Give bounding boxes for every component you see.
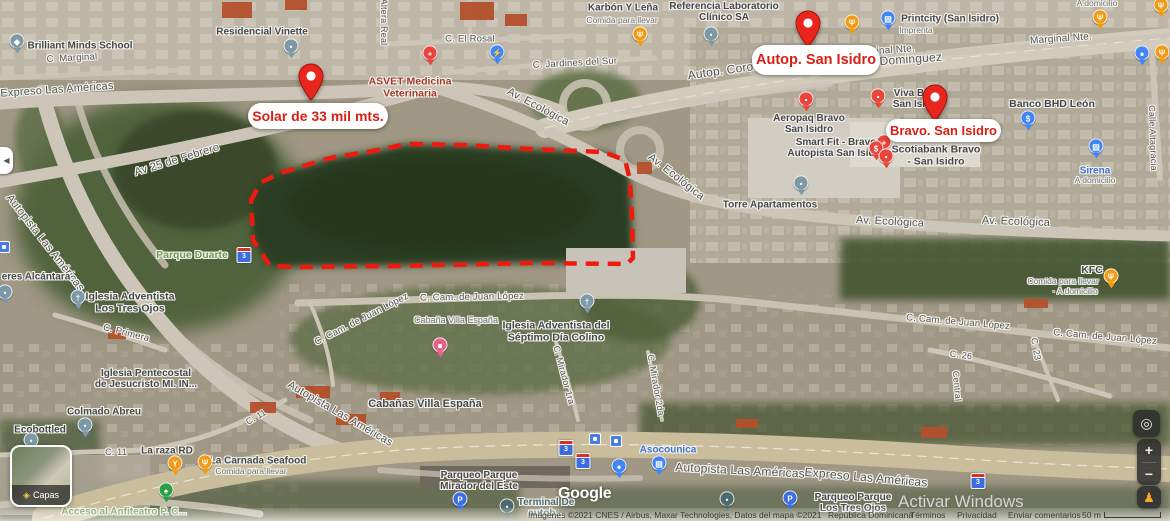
shield-number: 3 <box>577 458 590 467</box>
bravo-san-isidro-label[interactable]: Bravo. San Isidro <box>886 119 1001 142</box>
pin-tip <box>802 105 810 111</box>
street-av-25-de-febrero: Av 25 de Febrero <box>133 141 221 179</box>
parking-pin-glyph: P <box>453 491 468 506</box>
residencial-pin[interactable]: • <box>284 38 299 58</box>
street-expreso-las-americas: Expreso Las Américas <box>0 80 114 100</box>
label-asvet[interactable]: ASVET Medicina Veterinaria <box>369 76 452 100</box>
privacy-link[interactable]: Privacidad <box>957 510 997 520</box>
label-aeropaq[interactable]: Aeropaq Bravo San Isidro <box>773 113 845 135</box>
street-autop-coron: Autop. Coron <box>687 59 761 82</box>
pin-tip <box>882 162 890 168</box>
church-pin-glyph: † <box>71 289 86 304</box>
street-autopista-diag: Autopista Las Américas <box>285 379 395 449</box>
solar-pin[interactable] <box>298 63 324 106</box>
feedback-link[interactable]: Enviar comentarios <box>1008 510 1081 520</box>
restaurant-pin[interactable]: Ψ <box>198 454 213 474</box>
restaurant-pin[interactable]: Ψ <box>845 14 860 34</box>
layers-widget[interactable]: ◈ Capas <box>10 445 72 507</box>
bank-pin[interactable]: $ <box>1021 110 1036 130</box>
street-c11-1: C. 11 <box>105 447 127 457</box>
ev-charging-pin-glyph: ⚡ <box>490 44 505 59</box>
zoom-in-button[interactable]: + <box>1137 439 1161 462</box>
lodging-pin-glyph: ■ <box>433 337 448 352</box>
veterinary-pin[interactable]: + <box>423 45 438 65</box>
transit-pin-glyph: • <box>720 491 735 506</box>
restaurant-pin-glyph: Ψ <box>1104 268 1119 283</box>
cart-pin-glyph: ▤ <box>652 455 667 470</box>
supermarket-cart-pin-glyph: ▤ <box>1089 138 1104 153</box>
label-parque-duarte[interactable]: Parque Duarte <box>156 250 228 262</box>
transit-glyph <box>2 245 6 249</box>
street-c-marginal: C. Marginal <box>46 52 97 65</box>
label-cabanas-villa-espana[interactable]: Cabañas Villa España <box>368 398 482 410</box>
label-karbon-y-lena[interactable]: Karbón Y Leña <box>588 2 658 13</box>
label-printcity-sub[interactable]: Imprenta <box>899 26 933 36</box>
restaurant-pin-glyph: Ψ <box>845 14 860 29</box>
store-pin-glyph: ▪ <box>879 148 894 163</box>
alcantara-pin[interactable]: • <box>0 284 13 304</box>
transit-station-icon[interactable] <box>589 433 601 445</box>
label-viva[interactable]: Viva B San Isi <box>893 88 925 110</box>
street-c-jardines-del-sur: C. Jardines del Sur <box>532 56 617 71</box>
pin-tip <box>615 472 623 478</box>
street-c-primera: C. Primera <box>102 323 151 345</box>
label-scotiabank[interactable]: Scotiabank Bravo - San Isidro <box>892 144 981 168</box>
transit-glyph <box>614 439 618 443</box>
restaurant-pin-glyph: Ψ <box>1093 9 1108 24</box>
label-torre-apartamentos[interactable]: Torre Apartamentos <box>723 199 817 210</box>
scale-label: 50 m <box>1082 510 1101 520</box>
label-a-domicilio-top[interactable]: A domicilio <box>1077 0 1118 9</box>
pin-tip <box>1138 59 1146 65</box>
street-c-el-rosal: C. El Rosal <box>445 35 495 46</box>
pin-tip <box>162 496 170 502</box>
street-juan-lopez-4: C. Cam. de Juan López <box>1053 328 1158 348</box>
bank-pin-glyph: $ <box>1021 110 1036 125</box>
pegman-button[interactable]: ♟ <box>1137 486 1161 509</box>
street-av-ecologica-3: Av. Ecológica <box>856 214 925 230</box>
bar-pin-glyph: Y <box>168 455 183 470</box>
label-iglesia-septimo-dia[interactable]: Iglesia Adventista del Séptimo Día Colin… <box>503 320 610 344</box>
lock-pin[interactable]: ● <box>1135 45 1150 65</box>
street-calle-altagracia: Calle Altagracia <box>1147 105 1159 171</box>
printer-pin-glyph: ▤ <box>881 10 896 25</box>
colmado-pin[interactable]: • <box>78 417 93 437</box>
supermarket-cart-pin[interactable]: ▤ <box>1089 138 1104 158</box>
transit-station-icon[interactable] <box>0 241 10 253</box>
restaurant-pin-glyph: Ψ <box>1154 0 1169 12</box>
label-la-carnada-sub[interactable]: Comida para llevar <box>215 467 286 477</box>
residencial-pin-glyph: • <box>284 38 299 53</box>
label-alcantara[interactable]: eres Alcántara <box>2 271 71 282</box>
label-karbon-sub[interactable]: Comida para llevar <box>586 16 657 26</box>
label-brilliant-minds-school[interactable]: Brilliant Minds School <box>27 40 132 51</box>
label-banco-bhd-leon[interactable]: Banco BHD León <box>1009 99 1095 111</box>
store-pin[interactable]: ▪ <box>879 148 894 168</box>
pin-tip <box>74 303 82 309</box>
lock-pin[interactable]: ● <box>612 458 627 478</box>
restaurant-pin-glyph: Ψ <box>633 26 648 41</box>
label-parqueo-mirador-este[interactable]: Parqueo Parque Mirador del Este <box>440 470 518 492</box>
street-mirador-1ra: C. Mirador 1ra <box>551 345 576 406</box>
attribution-bar: Imágenes ©2021 CNES / Airbus, Maxar Tech… <box>0 508 1170 521</box>
locate-icon: ◎ <box>1140 415 1152 432</box>
colmado-pin-glyph: • <box>78 417 93 432</box>
parking-pin-glyph: P <box>783 490 798 505</box>
zoom-out-button[interactable]: − <box>1137 463 1161 486</box>
street-juan-lopez-3: C. Cam. de Juan López <box>906 313 1011 333</box>
school-pin[interactable]: ◆ <box>10 33 25 53</box>
viva-pet-pin[interactable]: ▪ <box>871 88 886 108</box>
pin-tip <box>583 307 591 313</box>
shield-number: 3 <box>972 478 985 487</box>
street-mirador-2da: C. Mirador 2da <box>646 353 667 416</box>
lock-pin-glyph: ● <box>1135 45 1150 60</box>
laboratory-pin[interactable]: • <box>704 26 719 46</box>
restaurant-pin[interactable]: Ψ <box>1104 268 1119 288</box>
restaurant-pin[interactable]: Ψ <box>1155 44 1170 64</box>
label-la-carnada[interactable]: La Carnada Seafood <box>210 455 307 466</box>
label-residencial-vinette[interactable]: Residencial Vinette <box>216 26 308 37</box>
street-expreso-bottom: Expreso Las Américas <box>804 466 928 490</box>
route-shield-3: 3 <box>576 453 591 469</box>
aeropaq-pin[interactable]: ▪ <box>799 91 814 111</box>
label-ecobottled[interactable]: Ecobottled <box>14 424 66 435</box>
transit-glyph <box>593 437 597 441</box>
pin-tip <box>426 59 434 65</box>
aeropaq-pin-glyph: ▪ <box>799 91 814 106</box>
school-pin-glyph: ◆ <box>10 33 25 48</box>
label-kfc[interactable]: KFC <box>1081 265 1103 277</box>
scale-bar <box>1104 512 1161 518</box>
pin-tip <box>874 102 882 108</box>
my-location-button[interactable]: ◎ <box>1133 410 1160 437</box>
chevron-left-icon: ◀ <box>3 156 9 165</box>
pin-tip <box>1 298 9 304</box>
label-iglesia-pentecostal[interactable]: Iglesia Pentecostal de Jesucristo MI. IN… <box>95 368 197 390</box>
cart-pin[interactable]: ▤ <box>652 455 667 475</box>
restaurant-pin[interactable]: Ψ <box>1093 9 1108 29</box>
solar-label[interactable]: Solar de 33 mil mts. <box>248 103 388 129</box>
lodging-pin[interactable]: ■ <box>433 337 448 357</box>
veterinary-pin-glyph: + <box>423 45 438 60</box>
alcantara-pin-glyph: • <box>0 284 13 299</box>
street-c23: C. 23 <box>1029 337 1043 361</box>
church-pin[interactable]: † <box>580 293 595 313</box>
laboratory-pin-glyph: • <box>704 26 719 41</box>
lock-pin-glyph: ● <box>612 458 627 473</box>
shield-number: 3 <box>560 445 573 454</box>
label-referencia-laboratorio[interactable]: Referencia Laboratorio Clínico SA <box>669 1 778 23</box>
pin-tip <box>1024 124 1032 130</box>
street-av-ecologica-2: Av. Ecológica <box>645 151 706 203</box>
route-shield-3: 3 <box>559 440 574 456</box>
pegman-icon: ♟ <box>1143 490 1155 506</box>
street-c26: C. 26 <box>949 348 973 361</box>
pin-tip <box>797 189 805 195</box>
tree-pin[interactable]: ♠ <box>159 482 174 502</box>
shield-number: 3 <box>238 252 251 261</box>
pin-tip <box>436 351 444 357</box>
street-juan-lopez-2: C. Cam. de Juan López <box>313 292 411 349</box>
autop-san-isidro-label[interactable]: Autop. San Isidro <box>752 45 880 75</box>
side-panel-collapse-button[interactable]: ◀ <box>0 147 13 174</box>
street-av-ecologica-4: Av. Ecológica <box>982 215 1051 230</box>
label-colmado-abreu[interactable]: Colmado Abreu <box>67 406 141 417</box>
route-shield-3: 3 <box>971 473 986 489</box>
church-pin-glyph: † <box>580 293 595 308</box>
pin-tip <box>707 40 715 46</box>
restaurant-pin[interactable]: Ψ <box>1154 0 1169 17</box>
label-cabana-small[interactable]: Cabaña Villa España <box>414 315 498 325</box>
street-av-ecologica-1: Av. Ecológica <box>505 86 571 129</box>
street-dominguez: z Dominguez <box>870 51 943 69</box>
zoom-widget: + − <box>1137 439 1161 485</box>
route-shield-3: 3 <box>237 247 252 263</box>
label-kfc-sub2[interactable]: · A domicilio <box>1052 287 1097 297</box>
street-marginal-nte-2: Marginal Nte. <box>1030 31 1093 46</box>
imagery-credits: Imágenes ©2021 CNES / Airbus, Maxar Tech… <box>528 510 822 520</box>
ev-charging-pin[interactable]: ⚡ <box>490 44 505 64</box>
printer-pin[interactable]: ▤ <box>881 10 896 30</box>
street-central: Central <box>951 370 964 401</box>
restaurant-pin-glyph: Ψ <box>198 454 213 469</box>
pin-tip <box>171 469 179 475</box>
label-printcity[interactable]: Printcity (San Isidro) <box>901 13 999 24</box>
label-sirena-sub[interactable]: A domicilio <box>1075 176 1116 186</box>
restaurant-pin-glyph: Ψ <box>1155 44 1170 59</box>
street-autopista-bottom: Autopista Las Américas <box>675 461 805 481</box>
church-pin[interactable]: † <box>71 289 86 309</box>
transit-station-icon[interactable] <box>610 435 622 447</box>
restaurant-pin[interactable]: Ψ <box>633 26 648 46</box>
terms-link[interactable]: Términos <box>910 510 945 520</box>
torre-pin[interactable]: • <box>794 175 809 195</box>
pin-tip <box>81 431 89 437</box>
street-altera-real: Altera Real <box>379 0 389 45</box>
pin-tip <box>287 52 295 58</box>
bar-pin[interactable]: Y <box>168 455 183 475</box>
label-asocounica[interactable]: Asocounica <box>640 444 697 455</box>
label-iglesia-tres-ojos[interactable]: Iglesia Adventista Los Tres Ojos <box>86 291 175 315</box>
street-juan-lopez-1: C. Cam. de Juan López <box>420 292 524 304</box>
map-overlay: C. MarginalExpreso Las AméricasAv 25 de … <box>0 0 1170 521</box>
tree-pin-glyph: ♠ <box>159 482 174 497</box>
map-region: República Dominicana <box>828 510 913 520</box>
map-canvas[interactable]: C. MarginalExpreso Las AméricasAv 25 de … <box>0 0 1170 521</box>
torre-pin-glyph: • <box>794 175 809 190</box>
layers-icon: ◈ <box>23 490 30 501</box>
street-c11-2: C. 11 <box>244 407 268 427</box>
viva-pet-pin-glyph: ▪ <box>871 88 886 103</box>
google-logo: Google <box>558 485 611 503</box>
layers-label: Capas <box>33 490 59 500</box>
